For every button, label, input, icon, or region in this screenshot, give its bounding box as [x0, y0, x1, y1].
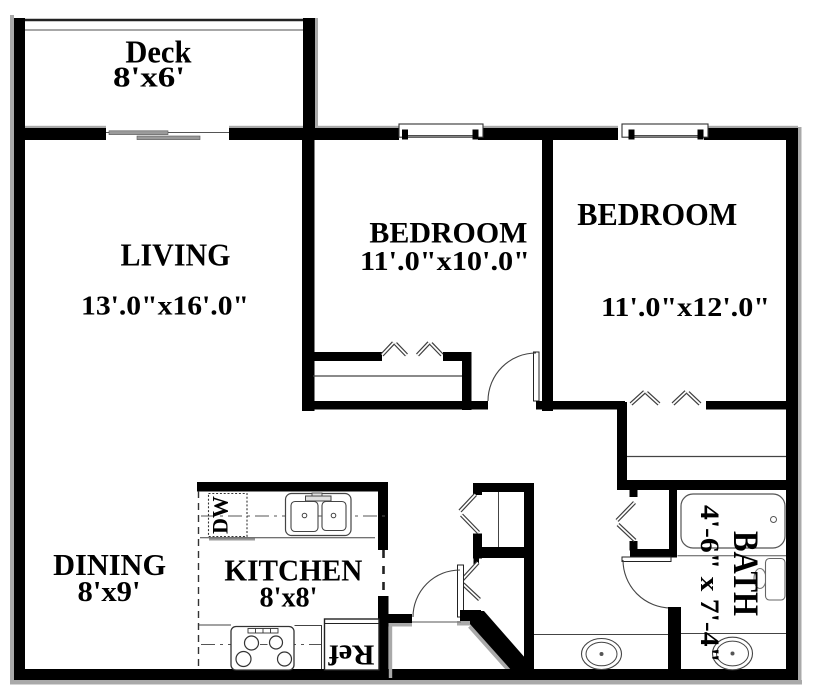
svg-text:BEDROOM: BEDROOM	[577, 196, 737, 232]
svg-text:8'x9': 8'x9'	[78, 577, 141, 608]
svg-text:13'.0"x16'.0": 13'.0"x16'.0"	[81, 291, 249, 321]
svg-text:LIVING: LIVING	[121, 237, 231, 273]
svg-text:4'-6" x 7'-4": 4'-6" x 7'-4"	[695, 505, 724, 663]
svg-text:BEDROOM: BEDROOM	[369, 217, 527, 250]
svg-text:8'x8': 8'x8'	[260, 583, 318, 614]
svg-text:DW: DW	[208, 496, 233, 534]
svg-text:Ref: Ref	[328, 639, 375, 670]
svg-text:BATH: BATH	[726, 531, 766, 616]
svg-text:11'.0"x10'.0": 11'.0"x10'.0"	[360, 246, 530, 276]
svg-text:11'.0"x12'.0": 11'.0"x12'.0"	[601, 292, 770, 322]
svg-text:8'x6': 8'x6'	[113, 63, 185, 94]
